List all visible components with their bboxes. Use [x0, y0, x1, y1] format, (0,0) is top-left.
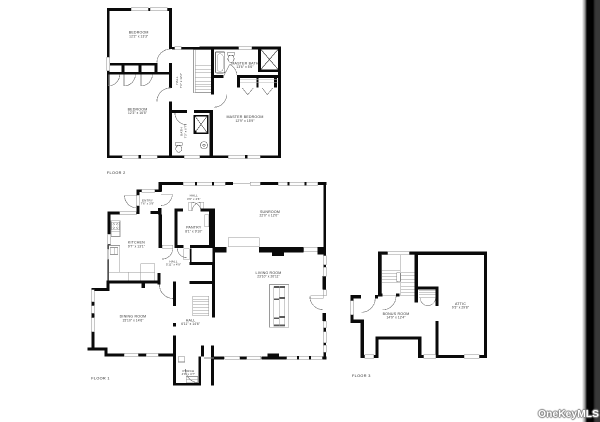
- svg-text:14'9" x 12'4": 14'9" x 12'4": [386, 316, 405, 320]
- svg-text:7'6" x 12'2": 7'6" x 12'2": [179, 73, 183, 88]
- svg-text:5'11" x 4'9": 5'11" x 4'9": [166, 263, 181, 267]
- svg-text:FLOOR 1: FLOOR 1: [91, 377, 110, 381]
- svg-text:8'1" x 9'10": 8'1" x 9'10": [185, 229, 202, 233]
- svg-text:4'9" x 4'7": 4'9" x 4'7": [182, 372, 196, 376]
- svg-text:12'9" x 15'9": 12'9" x 15'9": [235, 119, 254, 123]
- svg-text:FLOOR 2: FLOOR 2: [107, 171, 126, 175]
- svg-text:7'6" x 3'9": 7'6" x 3'9": [141, 202, 155, 206]
- svg-text:9'3" x 29'8": 9'3" x 29'8": [452, 306, 469, 310]
- svg-text:13'6" x 5'6": 13'6" x 5'6": [236, 65, 253, 69]
- svg-text:7'3" x 6'7": 7'3" x 6'7": [184, 125, 188, 139]
- svg-text:6'11" x 14'6": 6'11" x 14'6": [181, 322, 200, 326]
- svg-text:FLOOR 3: FLOOR 3: [352, 374, 371, 378]
- svg-text:9'7" x 13'1": 9'7" x 13'1": [128, 244, 145, 248]
- svg-text:23'10" x 20'11": 23'10" x 20'11": [257, 275, 280, 279]
- svg-text:12'3" x 16'5": 12'3" x 16'5": [128, 111, 147, 115]
- svg-text:12'2" x 13'3": 12'2" x 13'3": [129, 34, 148, 38]
- svg-text:3'6" x 4'6": 3'6" x 4'6": [187, 197, 201, 201]
- svg-text:22'0" x 12'0": 22'0" x 12'0": [259, 214, 278, 218]
- svg-text:15'10" x 14'6": 15'10" x 14'6": [123, 318, 144, 322]
